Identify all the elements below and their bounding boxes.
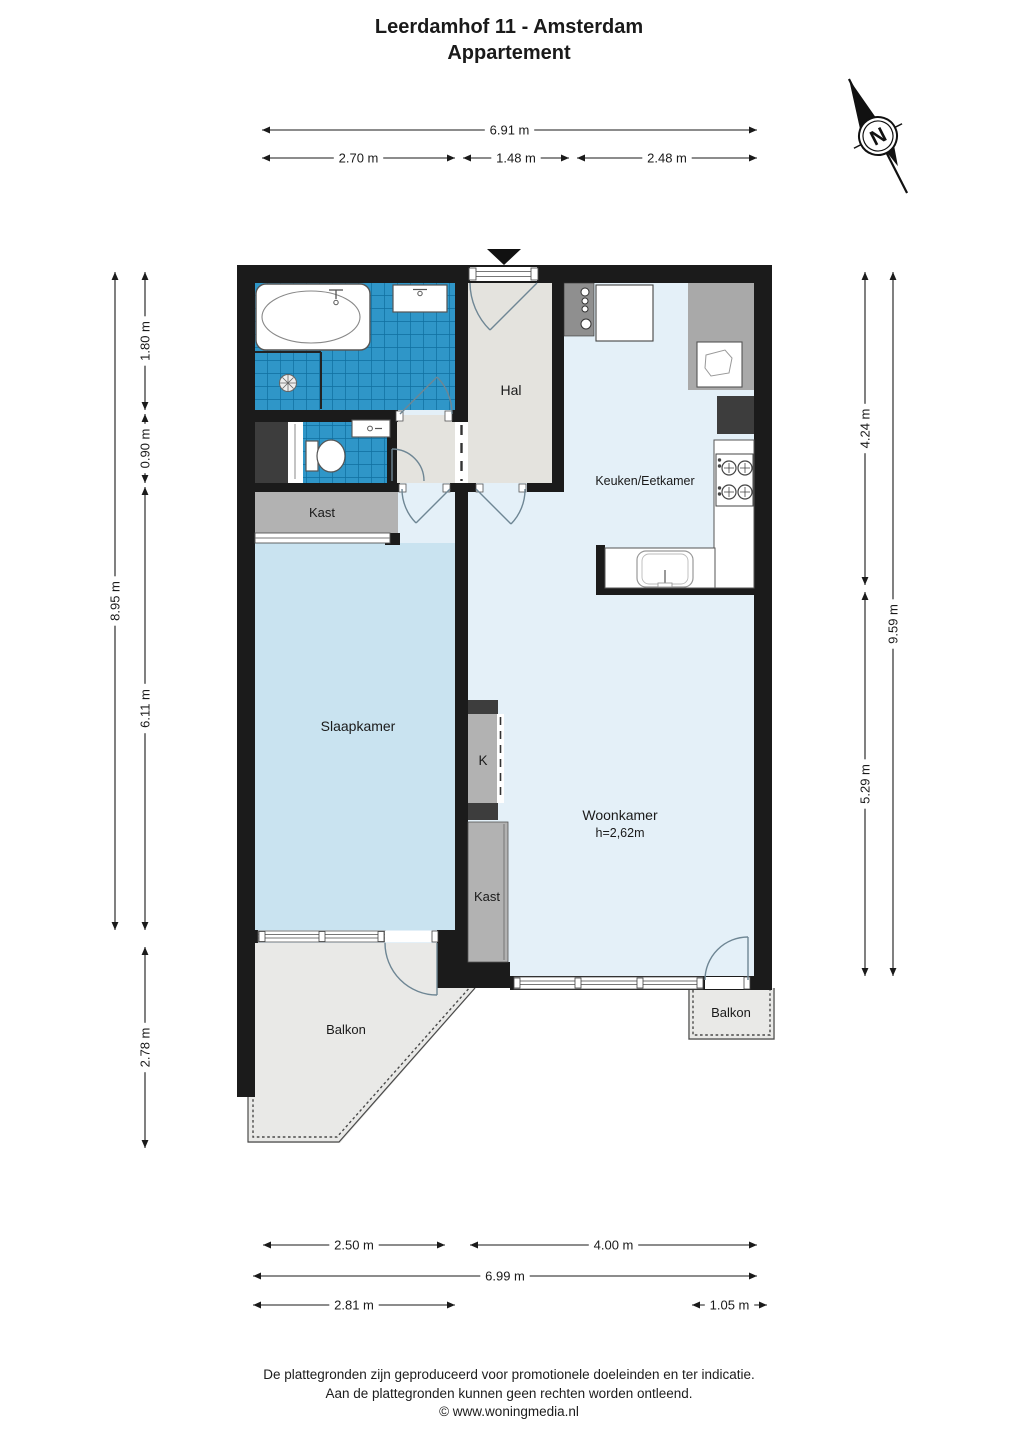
dim-bottom-2: 6.99 m bbox=[253, 1268, 757, 1285]
toilet-basin-icon bbox=[352, 420, 390, 437]
floorplan-drawing: N 6.91 m2.70 m1.48 m2.48 m2.50 m4.00 m6.… bbox=[0, 0, 1018, 1440]
svg-text:8.95 m: 8.95 m bbox=[108, 581, 123, 621]
room-label-kast-mid: Kast bbox=[474, 889, 500, 904]
sink-unit-icon bbox=[697, 342, 742, 387]
dim-top-3: 2.48 m bbox=[577, 150, 757, 167]
svg-text:2.48 m: 2.48 m bbox=[647, 151, 687, 166]
dim-bottom-0: 2.50 m bbox=[263, 1237, 445, 1254]
svg-text:1.05 m: 1.05 m bbox=[710, 1298, 750, 1313]
dim-bottom-4: 1.05 m bbox=[692, 1297, 767, 1314]
room-label-woonkamer-h: h=2,62m bbox=[596, 826, 645, 840]
shaft-kitchen-dark bbox=[717, 396, 754, 434]
room-label-kast-top: Kast bbox=[309, 505, 335, 520]
bathtub-icon bbox=[256, 284, 370, 350]
footer-line-1: De plattegronden zijn geproduceerd voor … bbox=[0, 1366, 1018, 1385]
dim-right-2: 9.59 m bbox=[885, 272, 902, 976]
toilet-icon bbox=[306, 441, 318, 471]
svg-text:0.90 m: 0.90 m bbox=[138, 429, 153, 469]
bedroom-floor bbox=[255, 543, 455, 930]
dim-top-1: 2.70 m bbox=[262, 150, 455, 167]
room-label-slaapkamer: Slaapkamer bbox=[321, 718, 396, 734]
dim-left-4: 2.78 m bbox=[137, 947, 154, 1148]
dim-left-2: 0.90 m bbox=[137, 414, 154, 483]
dim-top-0: 6.91 m bbox=[262, 122, 757, 139]
kitchen-sink-icon bbox=[637, 551, 693, 587]
svg-text:1.48 m: 1.48 m bbox=[496, 151, 536, 166]
svg-text:6.11 m: 6.11 m bbox=[138, 689, 153, 728]
shaft-dark bbox=[255, 422, 288, 483]
svg-text:4.24 m: 4.24 m bbox=[858, 409, 873, 449]
svg-text:2.50 m: 2.50 m bbox=[334, 1238, 374, 1253]
footer-copyright: © www.woningmedia.nl bbox=[0, 1403, 1018, 1422]
room-label-keuken: Keuken/Eetkamer bbox=[595, 474, 694, 488]
svg-text:4.00 m: 4.00 m bbox=[594, 1238, 634, 1253]
shower-drain-icon bbox=[280, 375, 297, 392]
dim-left-0: 8.95 m bbox=[107, 272, 124, 930]
svg-text:1.80 m: 1.80 m bbox=[138, 321, 153, 361]
bedroom-window-band bbox=[258, 931, 385, 942]
dim-bottom-1: 4.00 m bbox=[470, 1237, 757, 1254]
floorplan-page: Leerdamhof 11 - Amsterdam Appartement bbox=[0, 0, 1018, 1440]
room-label-k-closet: K bbox=[478, 753, 487, 768]
svg-text:9.59 m: 9.59 m bbox=[886, 604, 901, 644]
compass-icon: N bbox=[825, 67, 931, 206]
dim-right-0: 4.24 m bbox=[857, 272, 874, 585]
room-label-balkon-right: Balkon bbox=[711, 1005, 751, 1020]
svg-text:6.99 m: 6.99 m bbox=[485, 1269, 525, 1284]
footer-disclaimer: De plattegronden zijn geproduceerd voor … bbox=[0, 1366, 1018, 1422]
svg-text:2.81 m: 2.81 m bbox=[334, 1298, 374, 1313]
room-label-hal: Hal bbox=[500, 382, 521, 398]
dim-bottom-3: 2.81 m bbox=[253, 1297, 455, 1314]
svg-text:2.78 m: 2.78 m bbox=[138, 1028, 153, 1068]
dim-left-1: 1.80 m bbox=[137, 272, 154, 410]
footer-line-2: Aan de plattegronden kunnen geen rechten… bbox=[0, 1385, 1018, 1404]
svg-text:2.70 m: 2.70 m bbox=[339, 151, 379, 166]
dim-left-3: 6.11 m bbox=[137, 487, 154, 930]
entrance-marker-icon bbox=[487, 249, 521, 265]
dim-top-2: 1.48 m bbox=[463, 150, 569, 167]
room-label-woonkamer: Woonkamer bbox=[582, 807, 658, 823]
dim-right-1: 5.29 m bbox=[857, 592, 874, 976]
living-window-band bbox=[514, 977, 703, 989]
svg-text:6.91 m: 6.91 m bbox=[490, 123, 530, 138]
fridge-icon bbox=[596, 285, 653, 341]
room-label-balkon-left: Balkon bbox=[326, 1022, 366, 1037]
svg-text:5.29 m: 5.29 m bbox=[858, 764, 873, 804]
